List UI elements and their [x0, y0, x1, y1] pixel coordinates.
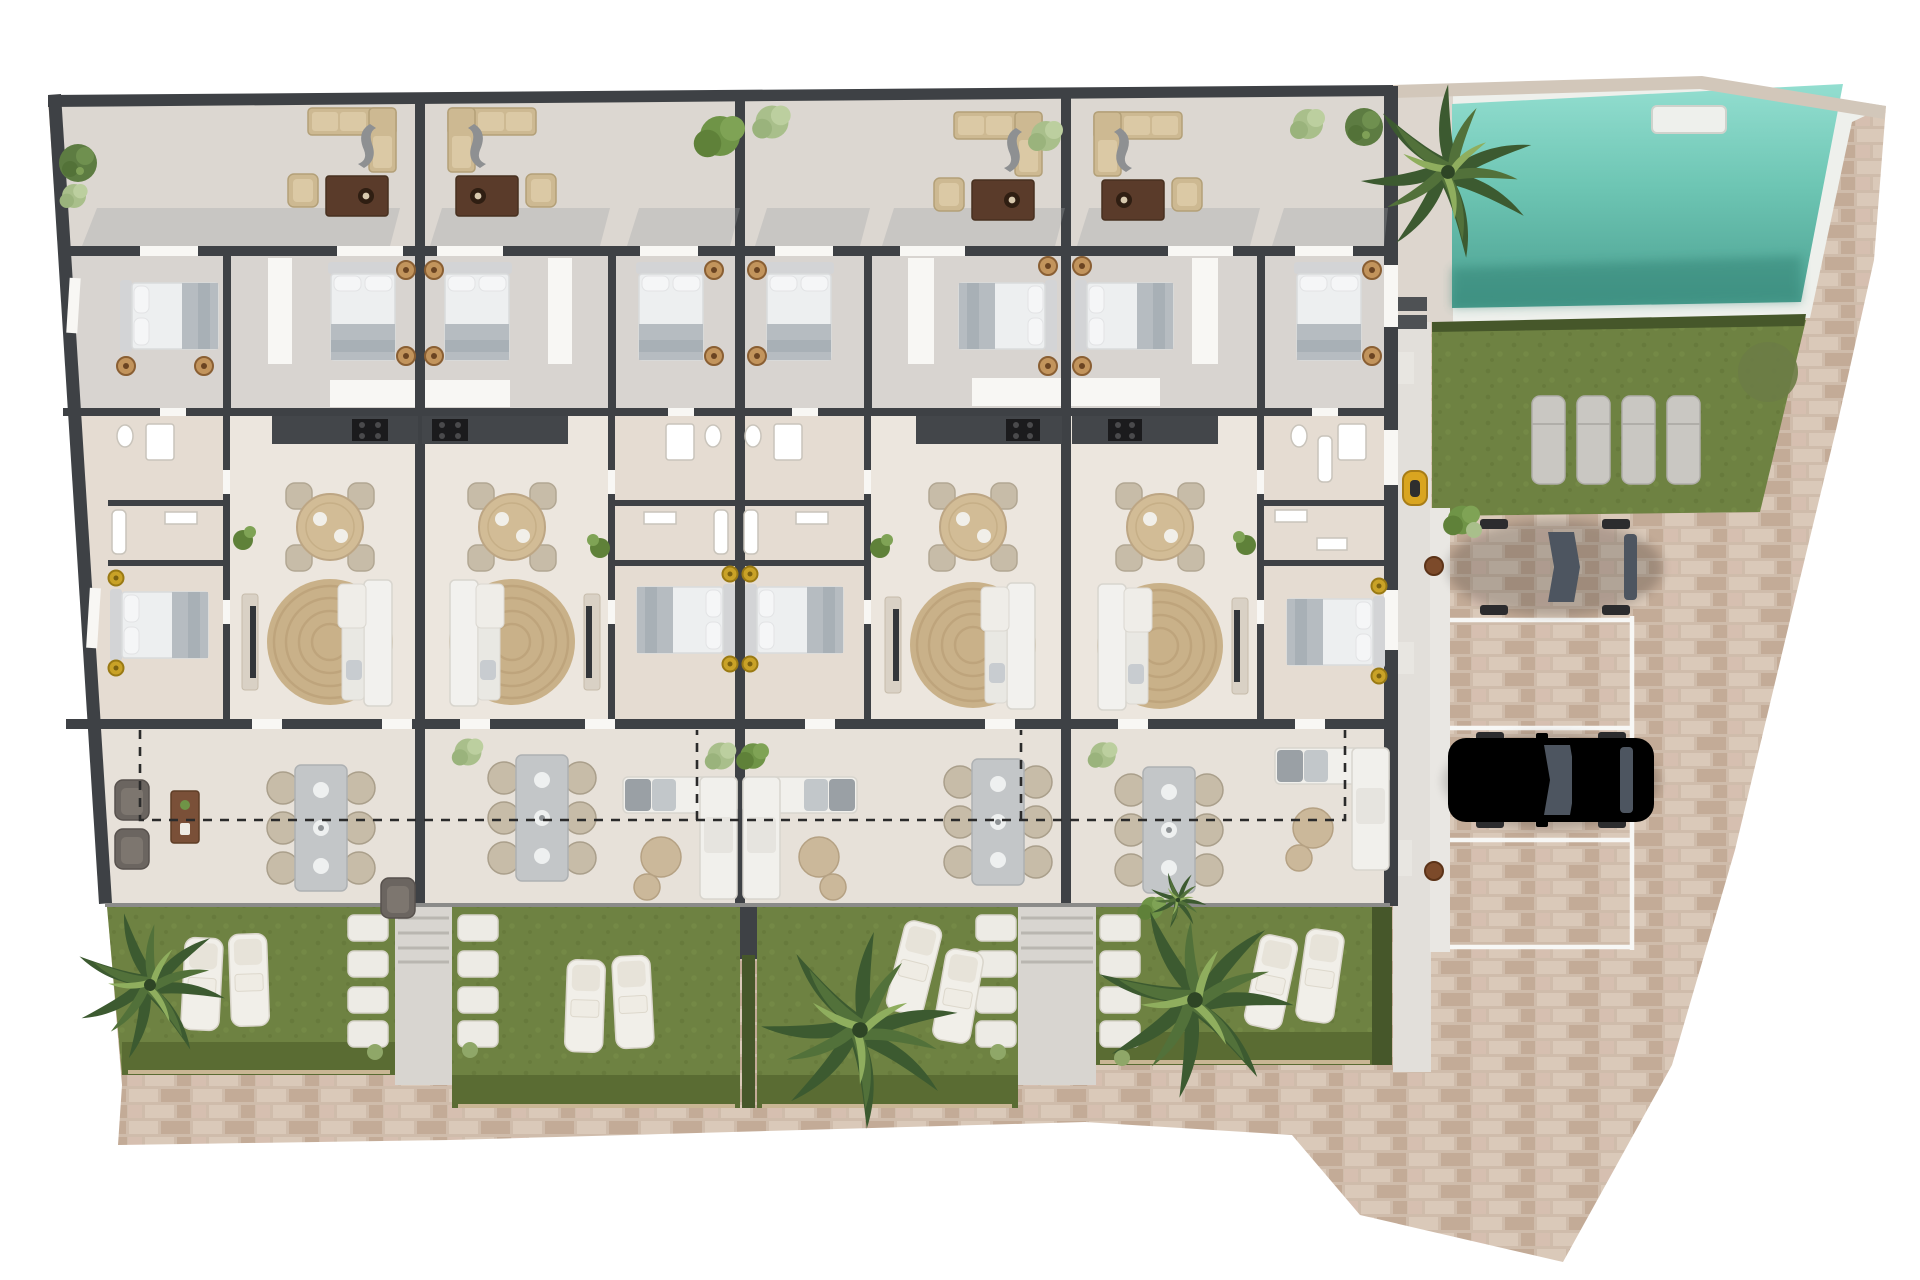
bed2-u1 [110, 589, 208, 661]
floor-plan-page: .redcar .carBody{fill:var(--carRed);stro… [0, 0, 1920, 1280]
pool-lounger-1 [1532, 396, 1565, 484]
pool-lounger-4 [1667, 396, 1700, 484]
bed-u4b [1294, 262, 1364, 360]
lawn-tree [1738, 342, 1798, 402]
east-walkway [1393, 322, 1431, 1072]
bed-u3b [764, 262, 834, 360]
dining-u4 [1116, 483, 1204, 571]
bed-u1b [328, 262, 398, 360]
pool-entry-step [1652, 106, 1726, 133]
dining-u3 [929, 483, 1017, 571]
bed-u4a [1075, 280, 1173, 352]
bed-u2a [442, 262, 512, 360]
silver-car [1443, 732, 1659, 829]
planter-pot [1425, 557, 1443, 575]
dining-u2 [468, 483, 556, 571]
kitchen-row-wall [63, 408, 1390, 416]
pool-lounger-2 [1577, 396, 1610, 484]
parked-scooter [1403, 471, 1427, 505]
bed2-u3 [745, 584, 843, 656]
terrace-dining-u2 [488, 755, 596, 881]
terrace-dining-u4 [1115, 767, 1223, 893]
bed-u2b [636, 262, 706, 360]
bed-u1a [120, 280, 218, 352]
terrace-dining-u3 [944, 759, 1052, 885]
pool-lounger-3 [1622, 396, 1655, 484]
floor-plan-rendering: .redcar .carBody{fill:var(--carRed);stro… [0, 0, 1920, 1280]
garden-divider-wall [740, 907, 757, 959]
bed2-u2 [637, 584, 735, 656]
planter-pot [1425, 862, 1443, 880]
bed2-u4 [1287, 596, 1385, 668]
bed-u3a [959, 280, 1057, 352]
dining-u1 [286, 483, 374, 571]
terrace-dining-u1 [267, 765, 375, 891]
party-wall-1 [415, 93, 425, 905]
